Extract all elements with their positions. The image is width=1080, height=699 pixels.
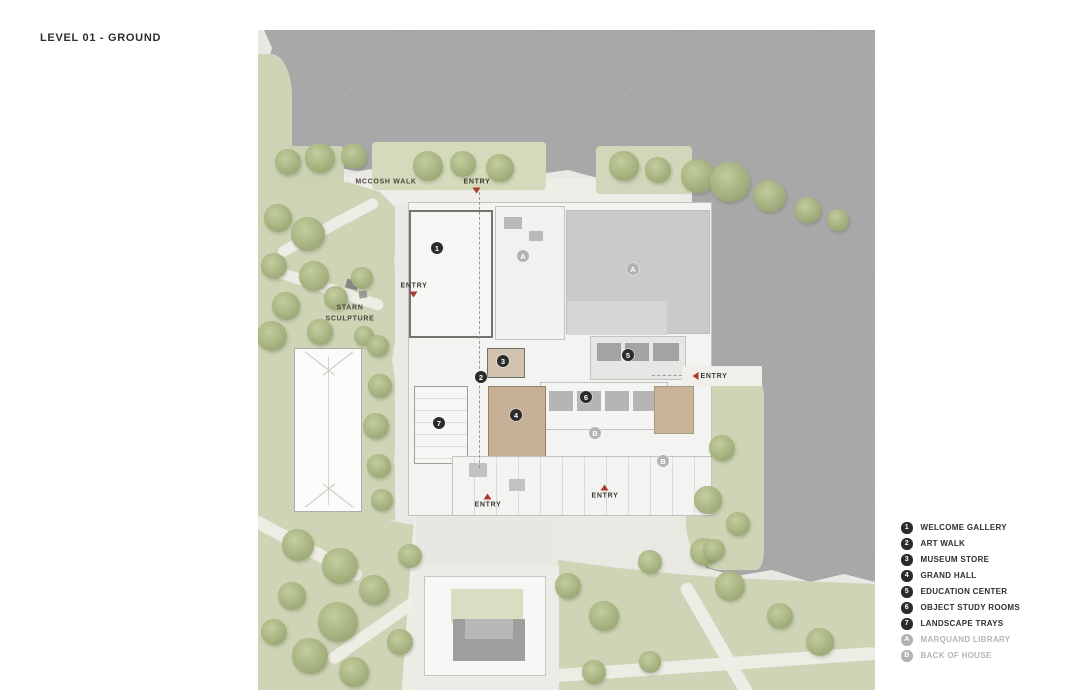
tree — [827, 209, 849, 231]
entry-text: ENTRY — [464, 179, 491, 186]
roof-block — [509, 479, 525, 491]
plan-marker-7: 7 — [433, 417, 445, 429]
legend-item-5: 5EDUCATION CENTER — [901, 586, 1071, 598]
roof-block — [597, 343, 621, 361]
art-walk-dashed-axis — [479, 192, 480, 468]
entry-label-5: ENTRY — [592, 485, 619, 500]
welcome-gallery-wing — [409, 210, 493, 338]
place-label-starn-sculpture: STARN SCULPTURE — [318, 304, 382, 325]
legend-item-2: 2ART WALK — [901, 538, 1071, 550]
object-study-wing — [540, 382, 668, 430]
tree — [371, 489, 393, 511]
entry-arrow-icon — [410, 292, 418, 298]
legend-symbol-badge: 1 — [901, 522, 913, 534]
education-center-wing — [590, 336, 686, 380]
legend-symbol-badge: 2 — [901, 538, 913, 550]
roof-block — [549, 391, 573, 411]
plan-marker-4: 4 — [510, 409, 522, 421]
roof-gable-line — [305, 351, 336, 375]
entry-label-2: ENTRY — [401, 283, 428, 298]
plan-marker-1: 1 — [431, 242, 443, 254]
plan-marker-A: A — [517, 250, 529, 262]
tree — [363, 413, 389, 439]
tree — [638, 550, 662, 574]
legend-symbol-badge: 4 — [901, 570, 913, 582]
tree — [258, 321, 287, 351]
site-plan: MCCOSH WALKSTARN SCULPTUREENTRYENTRYENTR… — [258, 30, 875, 690]
roof-block — [504, 217, 522, 229]
pavilion-courtyard — [451, 589, 523, 623]
place-label-mccosh-walk: MCCOSH WALK — [355, 179, 416, 186]
legend-label: OBJECT STUDY ROOMS — [921, 603, 1021, 612]
plan-marker-B: B — [657, 455, 669, 467]
tree — [292, 638, 328, 674]
entry-text: ENTRY — [475, 502, 502, 509]
tree — [318, 602, 358, 642]
tree — [367, 454, 391, 478]
legend-symbol-badge: A — [901, 634, 913, 646]
tree — [413, 151, 443, 181]
tree — [341, 143, 367, 169]
tree — [272, 292, 300, 320]
entry-arrow-icon — [473, 188, 481, 194]
tree — [589, 601, 619, 631]
tree — [368, 374, 392, 398]
pavilion-roof — [453, 619, 525, 661]
tree — [806, 628, 834, 656]
tree — [351, 267, 373, 289]
north-mid-wing — [495, 206, 565, 340]
entry-dashed-line — [652, 375, 682, 376]
tree — [694, 486, 722, 514]
entry-label-4: ENTRY — [475, 494, 502, 509]
tree — [305, 143, 335, 173]
roof-block — [653, 343, 679, 361]
pavilion-roof-top — [465, 619, 513, 639]
legend-label: GRAND HALL — [921, 571, 977, 580]
grand-hall-block — [488, 386, 546, 458]
south-pavilion — [424, 576, 546, 676]
tree — [387, 629, 413, 655]
roof-block — [605, 391, 629, 411]
legend-symbol-badge: 5 — [901, 586, 913, 598]
tree — [278, 582, 306, 610]
entry-label-3: ENTRY — [693, 372, 728, 380]
tree — [715, 571, 745, 601]
entry-arrow-icon — [693, 372, 699, 380]
tree — [726, 512, 750, 536]
tree — [398, 544, 422, 568]
tree — [754, 180, 786, 212]
legend-label: WELCOME GALLERY — [921, 523, 1007, 532]
legend: 1WELCOME GALLERY2ART WALK3MUSEUM STORE4G… — [901, 522, 1071, 662]
tree — [261, 253, 287, 279]
tree — [299, 261, 329, 291]
legend-symbol-badge: 6 — [901, 602, 913, 614]
tree — [767, 603, 793, 629]
existing-building — [294, 348, 362, 512]
plan-marker-6: 6 — [580, 391, 592, 403]
tree — [645, 157, 671, 183]
tree — [709, 435, 735, 461]
tree — [703, 539, 725, 561]
tree — [609, 151, 639, 181]
entry-arrow-icon — [484, 494, 492, 500]
tree — [555, 573, 581, 599]
roof-block — [469, 463, 487, 477]
legend-label: EDUCATION CENTER — [921, 587, 1008, 596]
tree — [275, 149, 301, 175]
plan-marker-B: B — [589, 427, 601, 439]
tree — [322, 548, 358, 584]
legend-item-B: BBACK OF HOUSE — [901, 650, 1071, 662]
tree — [450, 151, 476, 177]
legend-item-3: 3MUSEUM STORE — [901, 554, 1071, 566]
roof-gable-line — [305, 483, 336, 507]
tree — [639, 651, 661, 673]
legend-item-6: 6OBJECT STUDY ROOMS — [901, 602, 1071, 614]
roof-ridge-line — [328, 357, 329, 505]
roof-step — [567, 301, 667, 335]
entry-arrow-icon — [601, 485, 609, 491]
legend-label: ART WALK — [921, 539, 966, 548]
plan-marker-A: A — [627, 263, 639, 275]
tree — [282, 529, 314, 561]
tree — [710, 162, 750, 202]
page: LEVEL 01 - GROUND — [0, 0, 1080, 699]
tree — [359, 575, 389, 605]
legend-label: BACK OF HOUSE — [921, 651, 992, 660]
tree — [261, 619, 287, 645]
legend-symbol-badge: B — [901, 650, 913, 662]
entry-text: ENTRY — [592, 493, 619, 500]
legend-label: LANDSCAPE TRAYS — [921, 619, 1004, 628]
plan-marker-3: 3 — [497, 355, 509, 367]
legend-symbol-badge: 3 — [901, 554, 913, 566]
east-tan-block — [654, 386, 694, 434]
legend-item-A: AMARQUAND LIBRARY — [901, 634, 1071, 646]
tree — [291, 217, 325, 251]
tree — [264, 204, 292, 232]
tree — [367, 335, 389, 357]
page-title: LEVEL 01 - GROUND — [40, 32, 161, 44]
tree — [795, 197, 821, 223]
legend-item-4: 4GRAND HALL — [901, 570, 1071, 582]
entry-label-1: ENTRY — [464, 179, 491, 194]
plan-marker-5: 5 — [622, 349, 634, 361]
legend-item-7: 7LANDSCAPE TRAYS — [901, 618, 1071, 630]
sculpture-object — [358, 290, 367, 298]
legend-label: MARQUAND LIBRARY — [921, 635, 1011, 644]
plan-marker-2: 2 — [475, 371, 487, 383]
legend-symbol-badge: 7 — [901, 618, 913, 630]
legend-item-1: 1WELCOME GALLERY — [901, 522, 1071, 534]
entry-text: ENTRY — [401, 283, 428, 290]
entry-text: ENTRY — [701, 373, 728, 380]
tree — [582, 660, 606, 684]
tree — [339, 657, 369, 687]
legend-label: MUSEUM STORE — [921, 555, 990, 564]
roof-block — [529, 231, 543, 241]
